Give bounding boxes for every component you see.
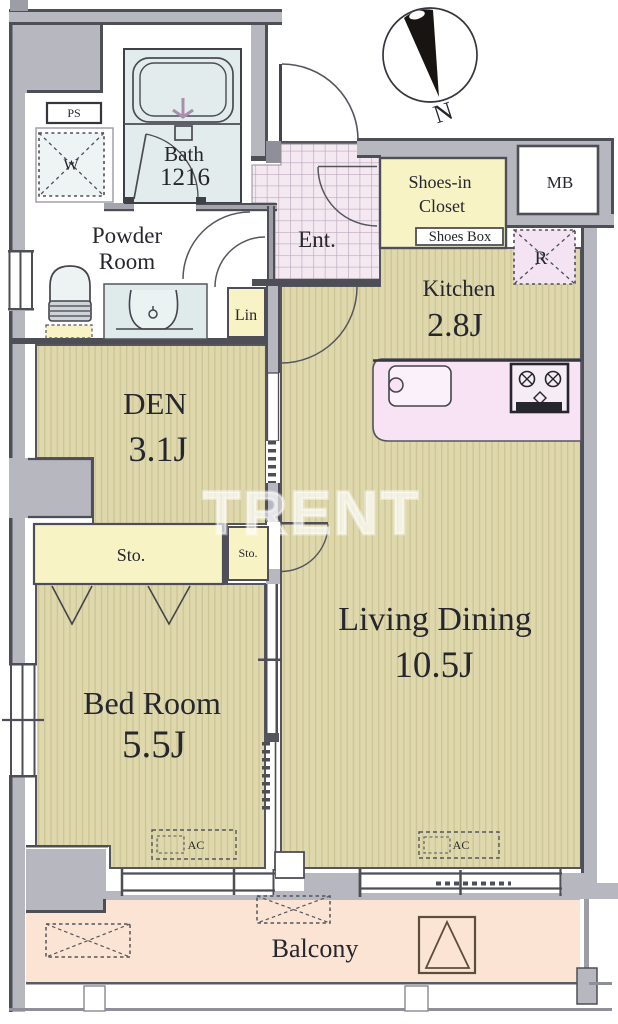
svg-text:MB: MB xyxy=(547,173,573,192)
svg-text:R: R xyxy=(535,248,548,269)
svg-text:Kitchen: Kitchen xyxy=(423,276,496,301)
svg-text:AC: AC xyxy=(453,838,470,852)
svg-text:Bath: Bath xyxy=(164,142,204,166)
svg-text:Shoes Box: Shoes Box xyxy=(429,229,492,245)
svg-text:Living Dining: Living Dining xyxy=(338,601,532,638)
svg-text:Bed Room: Bed Room xyxy=(83,685,221,721)
svg-text:W: W xyxy=(63,157,79,174)
svg-text:DEN: DEN xyxy=(123,386,187,421)
svg-text:Powder: Powder xyxy=(92,223,163,248)
svg-text:1216: 1216 xyxy=(160,164,210,191)
svg-text:10.5J: 10.5J xyxy=(394,645,473,686)
svg-text:Sto.: Sto. xyxy=(238,546,257,560)
svg-text:Sto.: Sto. xyxy=(117,545,146,565)
svg-text:Lin: Lin xyxy=(235,307,257,324)
svg-text:Ent.: Ent. xyxy=(298,227,336,252)
svg-text:Balcony: Balcony xyxy=(272,934,359,963)
svg-text:2.8J: 2.8J xyxy=(427,307,483,344)
svg-text:5.5J: 5.5J xyxy=(122,723,186,766)
svg-text:PS: PS xyxy=(67,106,80,120)
svg-text:AC: AC xyxy=(188,838,205,852)
svg-text:TRENT: TRENT xyxy=(203,479,421,547)
svg-text:Closet: Closet xyxy=(419,196,465,216)
svg-text:Shoes-in: Shoes-in xyxy=(409,172,472,192)
svg-text:3.1J: 3.1J xyxy=(128,429,187,469)
svg-text:Room: Room xyxy=(99,249,155,274)
